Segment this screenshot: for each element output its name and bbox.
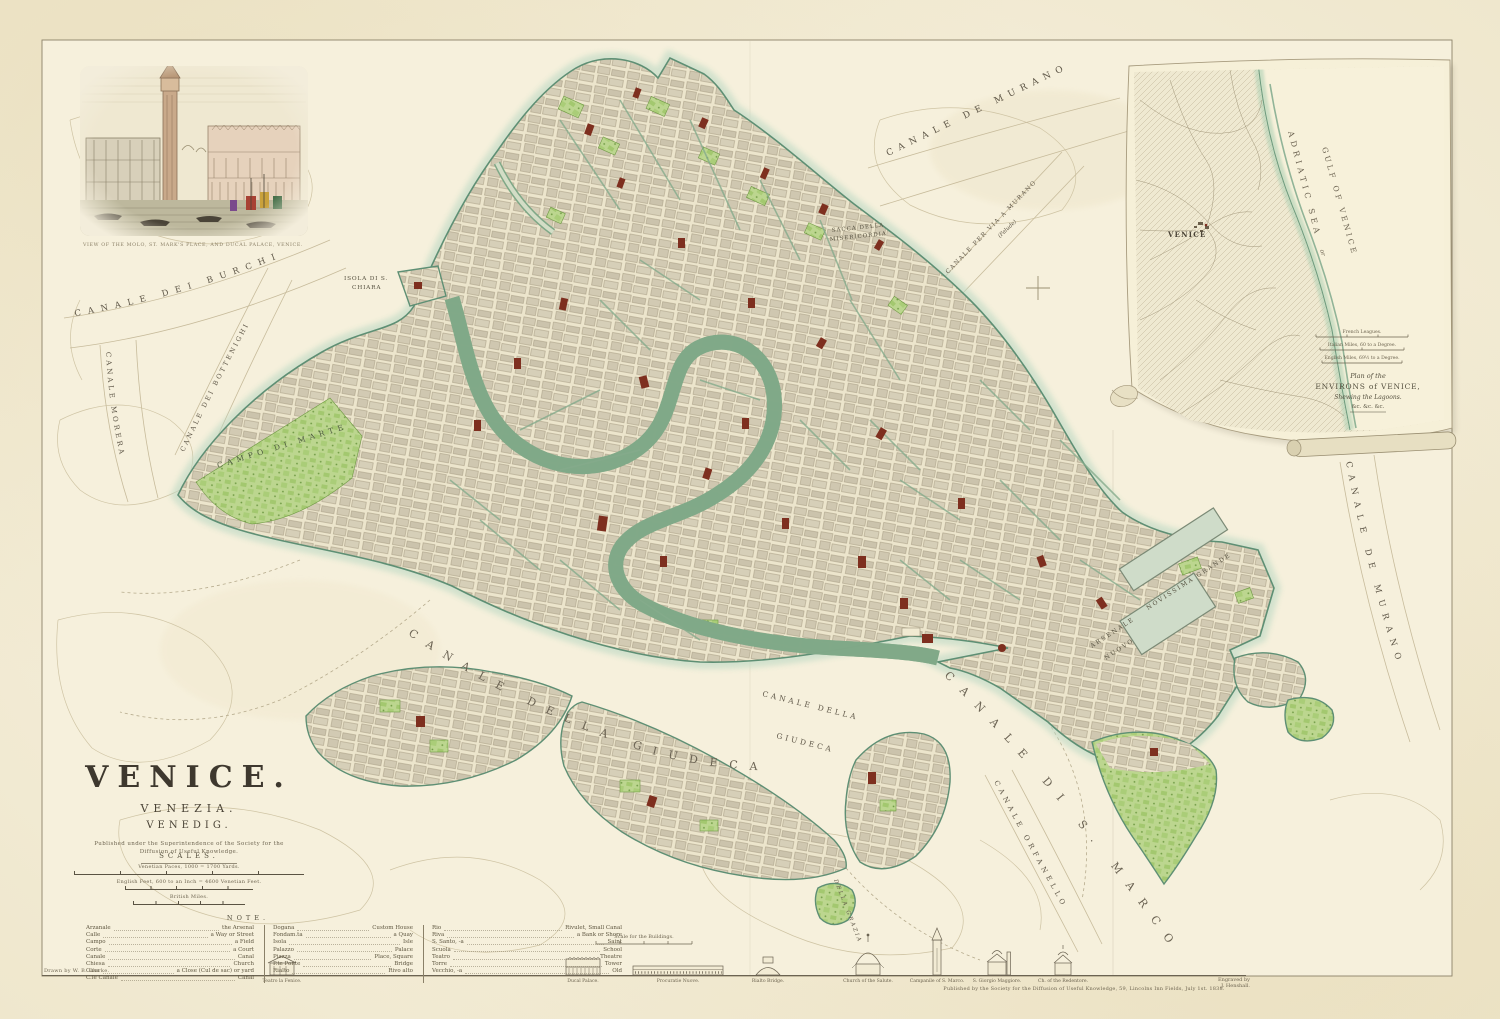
note-term: Teatro	[432, 954, 450, 961]
scale-bar-3-label: British Miles.	[58, 894, 320, 900]
note-def: Canal	[238, 954, 254, 961]
profile-caption-redentore: Ch. of the Redentore.	[1038, 978, 1089, 984]
note-term: Corte	[86, 947, 102, 954]
note-term: S. Santo, -a	[432, 939, 464, 946]
leader	[103, 932, 207, 938]
inset-caption-line1: Plan of the	[1349, 372, 1386, 380]
note-term: Campo	[86, 939, 106, 946]
note-term: C.le Canale	[86, 975, 118, 982]
leader	[109, 939, 232, 945]
note-term: Vecchio, -a	[432, 968, 462, 975]
inset-scale-2-label: Italian Miles, 60 to a Degree.	[1328, 342, 1397, 348]
note-term: Canale	[86, 954, 105, 961]
note-term: Rio	[432, 925, 441, 932]
note-def: a Court	[233, 947, 254, 954]
note-def: Rivo alto	[388, 968, 413, 975]
profile-caption-rialto: Rialto Bridge.	[752, 978, 785, 984]
vignette-engraving: VIEW OF THE MOLO, ST. MARK'S PLACE, AND …	[80, 62, 308, 248]
piazza-san-marco	[902, 628, 920, 636]
leader	[297, 947, 392, 953]
scale-bar-1	[74, 871, 304, 875]
leader	[467, 939, 605, 945]
profile-caption-campanile: Campanile of S. Marco.	[910, 978, 965, 984]
note-column-2: DoganaCustom House Fondam.taa Quay Isola…	[264, 925, 423, 983]
note-heading: NOTE.	[78, 914, 418, 922]
note-def: Palace	[395, 947, 413, 954]
note-def: a Field	[235, 939, 254, 946]
note-def: a Way or Street	[211, 932, 254, 939]
leader	[447, 932, 574, 938]
note-column-3: RioRivulet, Small Canal Rivaa Bank or Sh…	[423, 925, 632, 983]
vignette-caption: VIEW OF THE MOLO, ST. MARK'S PLACE, AND …	[82, 242, 303, 248]
note-def: the Arsenal	[222, 925, 254, 932]
leader	[306, 932, 391, 938]
note-term: Calle	[86, 932, 100, 939]
note-term: Isola	[273, 939, 286, 946]
leader	[103, 968, 174, 974]
leader	[303, 961, 391, 967]
title-venedig: VENEDIG.	[58, 820, 320, 831]
note-term: Scuola	[432, 947, 451, 954]
inset-scale-3-label: English Miles, 69½ to a Degree.	[1324, 354, 1400, 361]
note-def: Rivulet, Small Canal	[565, 925, 622, 932]
leader	[114, 925, 219, 931]
leader	[289, 939, 400, 945]
note-def: Old	[612, 968, 622, 975]
title-block: VENICE. VENEZIA. VENEDIG. Published unde…	[58, 760, 320, 864]
note-term: Arzanale	[86, 925, 111, 932]
profile-caption-salute: Church of the Salute.	[843, 978, 893, 984]
leader	[450, 961, 602, 967]
leader	[105, 947, 230, 953]
antique-map-page: { "page": { "paper": "#f3eddb", "ink": "…	[0, 0, 1500, 1019]
page-title: VENICE.	[58, 760, 320, 795]
note-def: Bridge	[394, 961, 413, 968]
scales-heading: SCALES.	[58, 852, 320, 860]
note-def: Saint	[607, 939, 622, 946]
note-def: School	[603, 947, 622, 954]
publisher-line-1: Published under the Superintendence of t…	[58, 841, 320, 848]
profile-caption-sgiorgio: S. Giorgio Maggiore.	[973, 978, 1022, 984]
scale-bar-1-label: Venetian Paces, 1000 = 1700 Yards.	[58, 864, 320, 870]
note-term: Torre	[432, 961, 447, 968]
inset-caption-line4: &c. &c. &c.	[1352, 404, 1385, 410]
publisher-imprint: Published by the Society for the Diffusi…	[928, 986, 1240, 992]
drawn-by-credit: Drawn by W. B. Clarke.	[44, 968, 109, 974]
note-def: Canal	[238, 975, 254, 982]
label-isola-chiara-line2: CHIARA	[352, 285, 381, 291]
note-block: NOTE. Arzanalethe Arsenal Callea Way or …	[78, 914, 658, 983]
inset-caption-line3: Shewing the Lagoons.	[1334, 394, 1401, 401]
note-term: Dogana	[273, 925, 294, 932]
note-term: Palazzo	[273, 947, 294, 954]
inset-scale-1-label: French Leagues.	[1343, 329, 1383, 335]
leader	[292, 968, 385, 974]
note-term: Riva	[432, 932, 444, 939]
leader	[294, 954, 372, 960]
scales-block: SCALES. Venetian Paces, 1000 = 1700 Yard…	[58, 852, 320, 905]
leader	[454, 947, 600, 953]
leader	[108, 954, 235, 960]
scale-bar-2	[125, 886, 253, 890]
note-term: Fondam.ta	[273, 932, 303, 939]
label-isola-chiara-line1: ISOLA DI S.	[344, 276, 388, 282]
note-def: Place, Square	[374, 954, 413, 961]
note-def: a Quay	[394, 932, 413, 939]
scale-bar-2-label: English Feet, 600 to an Inch = 4600 Vene…	[58, 879, 320, 885]
note-term: Piazza	[273, 954, 291, 961]
inset-venice-label: VENICE	[1167, 230, 1207, 239]
note-def: Isle	[403, 939, 413, 946]
note-term: P.te Ponte	[273, 961, 300, 968]
note-def: Custom House	[372, 925, 413, 932]
leader	[444, 925, 562, 931]
note-def: Tower	[605, 961, 622, 968]
note-def: a Bank or Shore	[577, 932, 622, 939]
note-def: Theatre	[600, 954, 622, 961]
inset-caption-line2: ENVIRONS of VENICE,	[1315, 382, 1420, 391]
note-def: a Close (Cul de sac) or yard	[177, 968, 254, 975]
inset-environs-map: VENICE ADRIATIC SEA or GULF OF VENICE Fr…	[1107, 59, 1460, 457]
scale-bar-3	[133, 901, 245, 905]
note-term: Rialto	[273, 968, 289, 975]
leader	[108, 961, 231, 967]
leader	[121, 975, 235, 981]
leader	[297, 925, 369, 931]
leader	[465, 968, 609, 974]
leader	[453, 954, 597, 960]
profile-caption-procuratie: Procuratie Nuove.	[657, 978, 700, 984]
title-venezia: VENEZIA.	[58, 802, 320, 815]
